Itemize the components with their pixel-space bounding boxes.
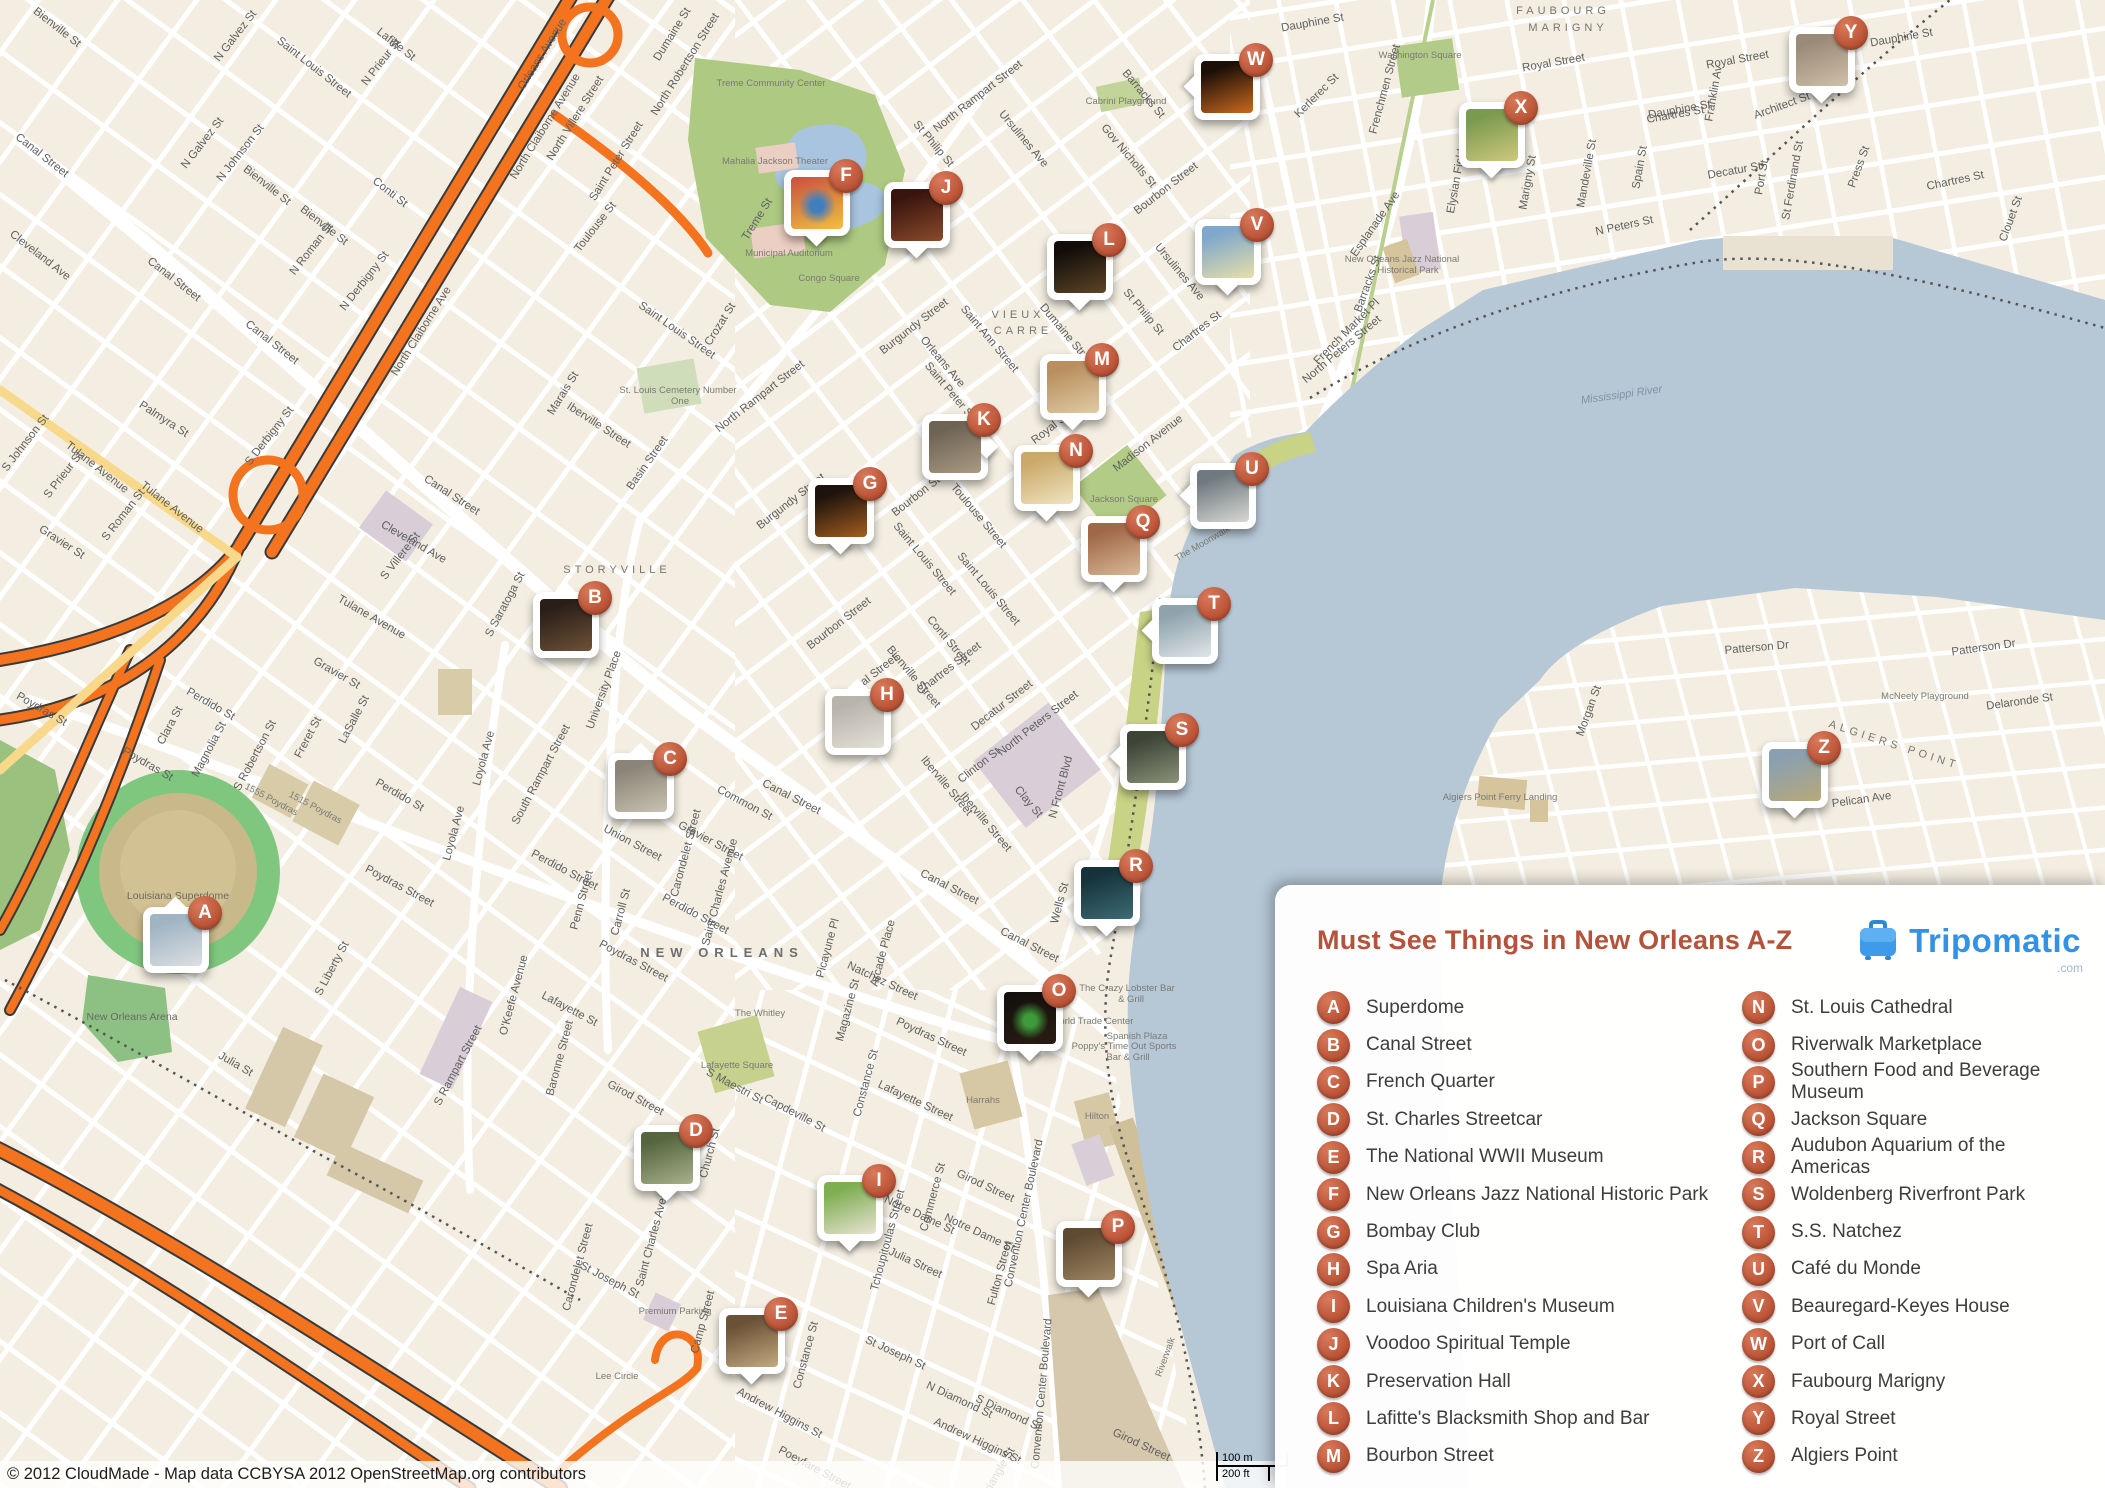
map-label: Historical Park <box>1377 265 1438 276</box>
legend-label: Bourbon Street <box>1366 1445 1494 1467</box>
legend-badge-i: I <box>1317 1290 1350 1323</box>
legend-item-h: HSpa Aria <box>1317 1251 1742 1288</box>
scale-imperial: 200 ft <box>1216 1467 1270 1481</box>
legend-item-t: TS.S. Natchez <box>1742 1213 2082 1250</box>
legend-item-p: PSouthern Food and Beverage Museum <box>1742 1064 2082 1101</box>
map-label: Hilton <box>1085 1111 1109 1122</box>
map-canvas[interactable]: STORYVILLENEW ORLEANSVIEUXCARREFAUBOURGM… <box>0 0 2105 1488</box>
map-label: The Crazy Lobster Bar <box>1079 983 1175 994</box>
legend-badge-v: V <box>1742 1290 1775 1323</box>
map-label: World Trade Center <box>1051 1016 1134 1027</box>
marker-badge-x: X <box>1504 91 1538 125</box>
legend-badge-p: P <box>1742 1066 1775 1099</box>
legend-badge-j: J <box>1317 1328 1350 1361</box>
legend-badge-r: R <box>1742 1141 1775 1174</box>
legend-label: Port of Call <box>1791 1333 1885 1355</box>
legend-item-f: FNew Orleans Jazz National Historic Park <box>1317 1176 1742 1213</box>
legend-panel: Must See Things in New Orleans A-Z Tripo… <box>1275 885 2105 1488</box>
marker-badge-h: H <box>870 678 904 712</box>
legend-item-v: VBeauregard-Keyes House <box>1742 1288 2082 1325</box>
legend-label: Southern Food and Beverage Museum <box>1791 1060 2082 1104</box>
map-label: Harrahs <box>966 1095 1000 1106</box>
legend-label: Voodoo Spiritual Temple <box>1366 1333 1571 1355</box>
marker-faubourg-marigny[interactable]: X <box>1459 102 1525 168</box>
map-label: Municipal Auditorium <box>745 248 833 259</box>
legend-item-o: ORiverwalk Marketplace <box>1742 1026 2082 1063</box>
map-label: The Whitley <box>735 1008 785 1019</box>
marker-badge-n: N <box>1059 434 1093 468</box>
marker-riverwalk-marketplace[interactable]: O <box>997 985 1063 1051</box>
marker-badge-a: A <box>188 896 222 930</box>
legend-column-n-z: NSt. Louis CathedralORiverwalk Marketpla… <box>1742 989 2082 1475</box>
map-label: Poppy's Time Out Sports <box>1072 1041 1177 1052</box>
legend-label: St. Charles Streetcar <box>1366 1109 1542 1131</box>
marker-french-quarter[interactable]: C <box>608 753 674 819</box>
legend-item-y: YRoyal Street <box>1742 1400 2082 1437</box>
marker-royal-street[interactable]: Y <box>1789 27 1855 93</box>
marker-preservation-hall[interactable]: K <box>922 414 988 480</box>
marker-port-of-call[interactable]: W <box>1194 54 1260 120</box>
legend-label: Canal Street <box>1366 1034 1472 1056</box>
legend-label: Preservation Hall <box>1366 1371 1511 1393</box>
legend-label: Louisiana Children's Museum <box>1366 1296 1615 1318</box>
marker-woldenberg-riverfront-park[interactable]: S <box>1120 724 1186 790</box>
marker-st-charles-streetcar[interactable]: D <box>634 1125 700 1191</box>
marker-badge-d: D <box>679 1114 713 1148</box>
legend-label: Algiers Point <box>1791 1445 1898 1467</box>
suitcase-icon <box>1855 919 1901 963</box>
marker-badge-j: J <box>929 171 963 205</box>
legend-label: French Quarter <box>1366 1071 1495 1093</box>
legend-badge-h: H <box>1317 1253 1350 1286</box>
marker-lafittes-blacksmith-shop[interactable]: L <box>1047 234 1113 300</box>
legend-badge-e: E <box>1317 1141 1350 1174</box>
marigny-wharf <box>1723 236 1893 270</box>
legend-badge-t: T <box>1742 1216 1775 1249</box>
marker-ss-natchez[interactable]: T <box>1152 598 1218 664</box>
marker-st-louis-cathedral[interactable]: N <box>1014 445 1080 511</box>
legend-badge-w: W <box>1742 1328 1775 1361</box>
marker-badge-w: W <box>1239 43 1273 77</box>
legend-column-a-m: ASuperdomeBCanal StreetCFrench QuarterDS… <box>1317 989 1742 1475</box>
legend-label: Riverwalk Marketplace <box>1791 1034 1982 1056</box>
legend-label: Café du Monde <box>1791 1258 1921 1280</box>
marker-jazz-national-historic-park[interactable]: F <box>784 170 850 236</box>
legend-badge-x: X <box>1742 1365 1775 1398</box>
marker-badge-m: M <box>1085 343 1119 377</box>
legend-badge-n: N <box>1742 991 1775 1024</box>
map-label: Lafayette Square <box>701 1060 773 1071</box>
legend-label: Jackson Square <box>1791 1109 1927 1131</box>
marker-voodoo-spiritual-temple[interactable]: J <box>884 182 950 248</box>
legend-label: Audubon Aquarium of the Americas <box>1791 1135 2082 1179</box>
marker-canal-street[interactable]: B <box>533 592 599 658</box>
marker-bombay-club[interactable]: G <box>808 478 874 544</box>
legend-label: Bombay Club <box>1366 1221 1480 1243</box>
logo-tld: .com <box>2057 961 2083 975</box>
legend-label: The National WWII Museum <box>1366 1146 1604 1168</box>
marker-louisiana-childrens-museum[interactable]: I <box>817 1175 883 1241</box>
marker-badge-r: R <box>1119 849 1153 883</box>
marker-badge-v: V <box>1240 208 1274 242</box>
legend-label: Spa Aria <box>1366 1258 1438 1280</box>
legend-badge-m: M <box>1317 1440 1350 1473</box>
marker-bourbon-street[interactable]: M <box>1040 354 1106 420</box>
legend-item-d: DSt. Charles Streetcar <box>1317 1101 1742 1138</box>
marker-beauregard-keyes-house[interactable]: V <box>1195 219 1261 285</box>
marker-badge-e: E <box>764 1297 798 1331</box>
legend-item-e: EThe National WWII Museum <box>1317 1139 1742 1176</box>
legend-label: Faubourg Marigny <box>1791 1371 1945 1393</box>
map-label: Congo Square <box>798 273 859 284</box>
legend-item-i: ILouisiana Children's Museum <box>1317 1288 1742 1325</box>
marker-badge-s: S <box>1165 713 1199 747</box>
legend-label: Superdome <box>1366 997 1464 1019</box>
legend-badge-z: Z <box>1742 1440 1775 1473</box>
map-label: Bar & Grill <box>1106 1052 1149 1063</box>
legend-item-r: RAudubon Aquarium of the Americas <box>1742 1139 2082 1176</box>
map-label: & Grill <box>1118 994 1144 1005</box>
legend-item-b: BCanal Street <box>1317 1026 1742 1063</box>
map-attribution: © 2012 CloudMade - Map data CCBYSA 2012 … <box>0 1461 1285 1488</box>
marker-spa-aria[interactable]: H <box>825 689 891 755</box>
legend-label: New Orleans Jazz National Historic Park <box>1366 1184 1708 1206</box>
marker-badge-z: Z <box>1807 731 1841 765</box>
map-label: Lee Circle <box>596 1371 639 1382</box>
marker-badge-y: Y <box>1834 16 1868 50</box>
legend-badge-y: Y <box>1742 1402 1775 1435</box>
marker-algiers-point[interactable]: Z <box>1762 742 1828 808</box>
map-label: McNeely Playground <box>1881 691 1969 702</box>
tripomatic-logo[interactable]: Tripomatic .com <box>1855 919 2081 963</box>
map-label: One <box>671 396 689 407</box>
marker-badge-i: I <box>862 1164 896 1198</box>
map-label: NEW ORLEANS <box>640 945 804 960</box>
legend-badge-d: D <box>1317 1103 1350 1136</box>
marker-southern-food-beverage-museum[interactable]: P <box>1056 1221 1122 1287</box>
marker-badge-l: L <box>1092 223 1126 257</box>
legend-badge-a: A <box>1317 991 1350 1024</box>
marker-superdome[interactable]: A <box>143 907 209 973</box>
legend-title: Must See Things in New Orleans A-Z <box>1317 925 1792 956</box>
legend-item-m: MBourbon Street <box>1317 1438 1742 1475</box>
legend-item-z: ZAlgiers Point <box>1742 1438 2082 1475</box>
marker-badge-p: P <box>1101 1210 1135 1244</box>
marker-audubon-aquarium[interactable]: R <box>1074 860 1140 926</box>
map-label: VIEUX <box>991 309 1044 321</box>
map-label: Algiers Point Ferry Landing <box>1443 792 1558 803</box>
legend-item-n: NSt. Louis Cathedral <box>1742 989 2082 1026</box>
map-label: FAUBOURG <box>1516 5 1610 17</box>
marker-badge-u: U <box>1235 452 1269 486</box>
legend-label: Royal Street <box>1791 1408 1896 1430</box>
map-label: Mahalia Jackson Theater <box>722 156 828 167</box>
legend-label: Beauregard-Keyes House <box>1791 1296 2010 1318</box>
legend-badge-o: O <box>1742 1029 1775 1062</box>
legend-badge-g: G <box>1317 1216 1350 1249</box>
legend-badge-b: B <box>1317 1029 1350 1062</box>
map-label: New Orleans Arena <box>86 1011 177 1023</box>
marker-badge-k: K <box>967 403 1001 437</box>
legend-badge-l: L <box>1317 1402 1350 1435</box>
washington-square <box>1395 38 1460 98</box>
marker-jackson-square[interactable]: Q <box>1081 516 1147 582</box>
marker-badge-b: B <box>578 581 612 615</box>
legend-badge-k: K <box>1317 1365 1350 1398</box>
map-label: CARRE <box>994 325 1053 337</box>
marker-badge-f: F <box>829 159 863 193</box>
map-label: New Orleans Jazz National <box>1345 254 1460 265</box>
marker-badge-o: O <box>1042 974 1076 1008</box>
legend-label: S.S. Natchez <box>1791 1221 1902 1243</box>
legend-label: Lafitte's Blacksmith Shop and Bar <box>1366 1408 1650 1430</box>
legend-item-g: GBombay Club <box>1317 1213 1742 1250</box>
legend-item-j: JVoodoo Spiritual Temple <box>1317 1326 1742 1363</box>
map-label: St. Louis Cemetery Number <box>619 385 736 396</box>
logo-wordmark: Tripomatic <box>1909 922 2081 960</box>
map-label: STORYVILLE <box>563 564 670 576</box>
legend-item-x: XFaubourg Marigny <box>1742 1363 2082 1400</box>
legend-item-l: LLafitte's Blacksmith Shop and Bar <box>1317 1400 1742 1437</box>
legend-item-k: KPreservation Hall <box>1317 1363 1742 1400</box>
legend-item-s: SWoldenberg Riverfront Park <box>1742 1176 2082 1213</box>
marker-cafe-du-monde[interactable]: U <box>1190 463 1256 529</box>
legend-item-a: ASuperdome <box>1317 989 1742 1026</box>
legend-item-q: QJackson Square <box>1742 1101 2082 1138</box>
map-label: MARIGNY <box>1528 22 1607 34</box>
map-label: Cabrini Playground <box>1086 96 1167 107</box>
legend-item-w: WPort of Call <box>1742 1326 2082 1363</box>
marker-badge-g: G <box>853 467 887 501</box>
legend-badge-q: Q <box>1742 1103 1775 1136</box>
legend-badge-s: S <box>1742 1178 1775 1211</box>
legend-item-c: CFrench Quarter <box>1317 1064 1742 1101</box>
marker-badge-t: T <box>1197 587 1231 621</box>
marker-badge-q: Q <box>1126 505 1160 539</box>
legend-label: Woldenberg Riverfront Park <box>1791 1184 2025 1206</box>
marker-badge-c: C <box>653 742 687 776</box>
map-label: Jackson Square <box>1090 494 1158 505</box>
map-label: Treme Community Center <box>717 78 826 89</box>
legend-item-u: UCafé du Monde <box>1742 1251 2082 1288</box>
legend-badge-f: F <box>1317 1178 1350 1211</box>
legend-badge-c: C <box>1317 1066 1350 1099</box>
marker-national-wwii-museum[interactable]: E <box>719 1308 785 1374</box>
legend-label: St. Louis Cathedral <box>1791 997 1953 1019</box>
legend-badge-u: U <box>1742 1253 1775 1286</box>
